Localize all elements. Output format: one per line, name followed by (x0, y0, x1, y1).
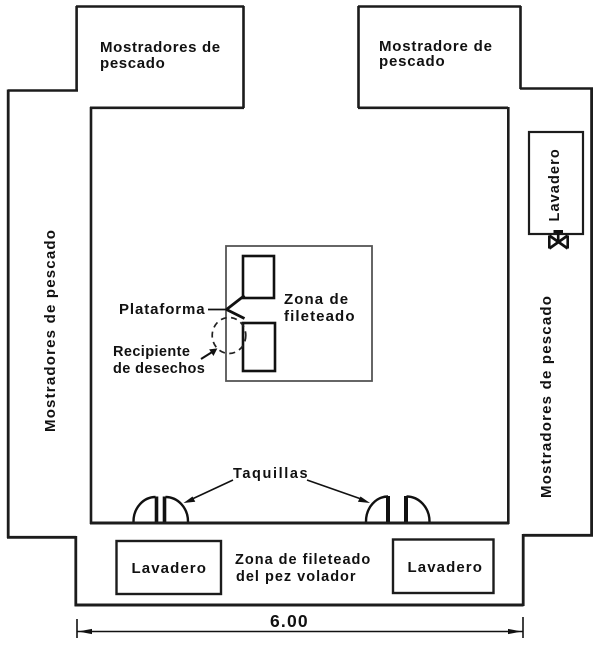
svg-text:Lavadero: Lavadero (408, 559, 484, 576)
svg-text:fileteado: fileteado (284, 308, 356, 325)
svg-text:Lavadero: Lavadero (132, 560, 208, 577)
svg-text:pescado: pescado (379, 53, 445, 70)
svg-text:6.00: 6.00 (270, 611, 309, 631)
svg-text:del pez volador: del pez volador (236, 569, 357, 585)
svg-text:Recipiente: Recipiente (113, 344, 190, 360)
svg-text:pescado: pescado (100, 55, 165, 72)
svg-text:Mostradores de pescado: Mostradores de pescado (42, 229, 59, 432)
svg-text:Zona de: Zona de (284, 291, 349, 308)
svg-text:Mostradores de pescado: Mostradores de pescado (538, 295, 555, 498)
svg-text:Taquillas: Taquillas (233, 466, 309, 482)
svg-text:de desechos: de desechos (113, 361, 205, 377)
svg-text:Mostradores de: Mostradores de (100, 39, 221, 56)
svg-text:Zona de fileteado: Zona de fileteado (235, 552, 371, 568)
svg-text:Lavadero: Lavadero (547, 148, 563, 221)
svg-text:Plataforma: Plataforma (119, 301, 206, 318)
